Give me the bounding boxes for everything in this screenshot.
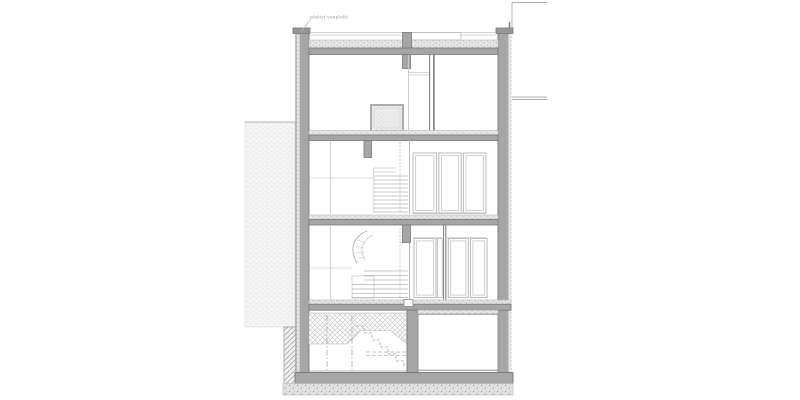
neighbor-left-foundation-hatch [284,327,296,384]
rooflight-curb [403,33,412,49]
right-wall-insulation [508,34,511,373]
left-parapet-coping [293,28,310,34]
rooflight-frame [411,33,461,41]
window-glass-line [466,156,483,211]
slab1-screed [309,215,498,220]
foundation-slab [295,373,513,384]
window-panel [439,153,461,213]
spiral-stair-inner-curve [362,235,373,260]
excavation-hatch [309,313,407,344]
side-panel [437,239,442,298]
stair-opening-rebate [404,300,413,307]
gravel-bed [283,384,513,396]
neighbor-left-mass [245,122,295,327]
building-section-drawing: plekist veeplekk [0,0,800,400]
section-drawing-canvas: plekist veeplekk [0,0,800,400]
neighbor-building-left [245,122,296,384]
door-glass-line [416,241,433,295]
basement [309,310,498,374]
window-panel [463,153,486,213]
basement-ceiling-insulation [418,310,498,314]
slab2-screed [309,131,498,136]
stair-treads-middle [374,176,408,212]
slab2-downstand-beam [364,141,372,158]
window-panel [448,239,468,298]
window-glass-line [451,241,466,295]
window-glass-line [441,156,458,211]
window-glass-line [473,241,485,295]
neighbor-building-right [510,3,548,100]
right-parapet-coping [496,28,513,34]
ground-floor [311,225,487,300]
slab1-structure [309,220,498,226]
door-panel [414,239,436,298]
roof-slab [309,48,498,55]
spiral-stair-treads [355,240,368,258]
roof-assembly [309,33,498,69]
bathtub-element [371,105,403,131]
left-wall-insulation [296,34,299,373]
roof-downstand-beam [403,55,411,69]
window-glass-line [416,156,434,211]
slab1-downstand-beam [403,225,411,243]
foundation [283,373,513,396]
basement-right-room [418,314,498,370]
slab2-structure [309,135,498,141]
ground-floor-slab [309,300,511,311]
basement-middle-wall [407,310,418,374]
windows-ground-floor [413,238,487,298]
stair-base-outline [352,276,374,298]
middle-floor [311,140,486,214]
windows-middle-floor [413,153,486,214]
window-panel [413,153,437,213]
flashing-annotation-label: plekist veeplekk [310,15,348,21]
floor-slab-1 [309,215,498,243]
